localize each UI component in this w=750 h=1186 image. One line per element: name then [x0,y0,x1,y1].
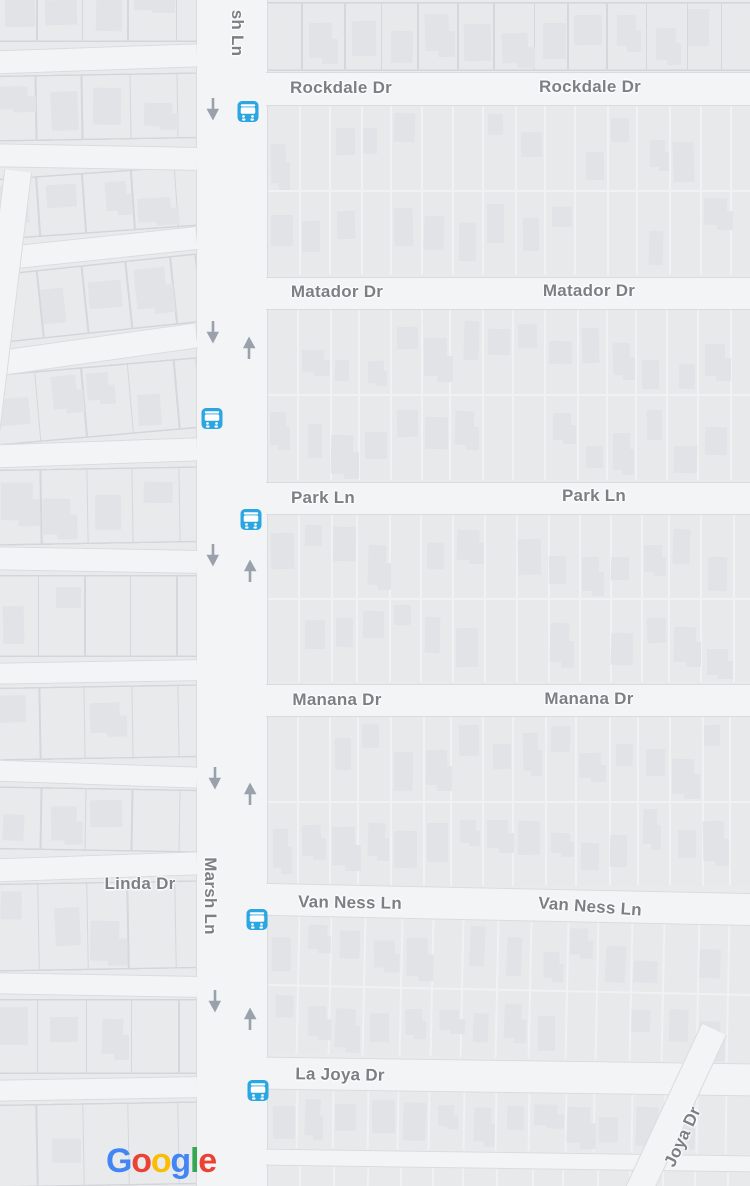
google-logo-letter: g [170,1142,190,1180]
google-logo[interactable]: Google [106,1142,216,1181]
google-logo-letter: o [151,1142,171,1180]
map-canvas[interactable]: sh LnRockdale DrRockdale DrMatador DrMat… [0,0,750,1186]
bus-stop-icon[interactable] [238,101,259,127]
google-logo-letter: l [190,1142,198,1180]
google-logo-letter: e [198,1142,216,1180]
bus-stop-icon[interactable] [241,509,262,535]
google-logo-letter: o [131,1142,151,1180]
bus-stop-icon[interactable] [247,909,268,935]
bus-stop-icon[interactable] [202,408,223,434]
transit-stops-layer [0,0,750,1186]
bus-stop-icon[interactable] [248,1080,269,1106]
google-logo-letter: G [106,1142,131,1180]
